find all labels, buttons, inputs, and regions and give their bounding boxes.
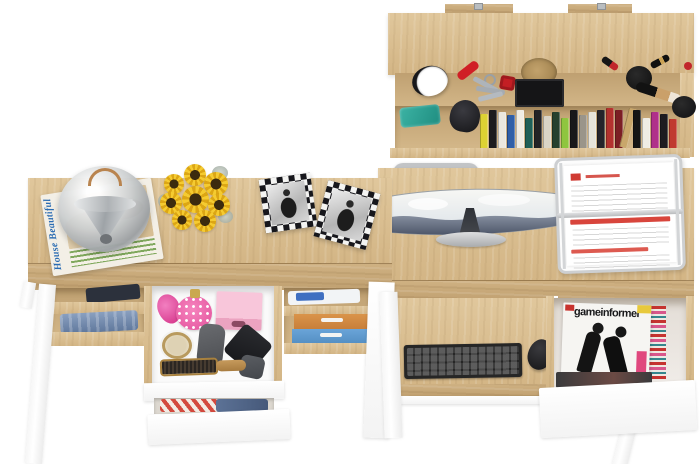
perfume-cap [190, 289, 200, 298]
paper-red-band [570, 216, 670, 224]
magazine-corner-tag [637, 305, 651, 313]
desk-lamp-bulb-cap [100, 234, 112, 244]
book-spine [489, 110, 497, 148]
sunflower [172, 210, 192, 230]
book-spine [552, 112, 560, 148]
document-tray [554, 154, 686, 274]
book-spine [642, 118, 650, 148]
book-spine [561, 118, 569, 148]
left-desk-leg [25, 284, 56, 464]
blue-box [292, 329, 370, 343]
cover-figure [576, 330, 602, 375]
keyboard-keys [407, 346, 519, 376]
paper-red-band [571, 247, 648, 254]
hairbrush [160, 357, 247, 377]
orange-box [294, 314, 370, 329]
photo-frame [258, 173, 317, 234]
book-spine [633, 110, 641, 148]
monitor-stand-base [436, 232, 506, 247]
book-spine [534, 110, 542, 148]
book-spine [660, 114, 668, 148]
furniture-product-render: gameinformer House Beautiful [0, 0, 700, 464]
striped-shirt [160, 399, 218, 412]
book-spine [588, 112, 596, 148]
mounting-bracket-icon [597, 3, 606, 10]
cover-figure-head [615, 326, 626, 337]
desk-lamp-rim [74, 196, 136, 212]
keyboard [404, 343, 523, 379]
book-spine [570, 110, 578, 148]
wall-shelf [388, 4, 694, 157]
red-key-fob [499, 75, 516, 91]
paper-text-lines [573, 254, 669, 269]
book-spine [516, 110, 524, 148]
book-spine [651, 112, 659, 148]
book-spine [579, 115, 587, 148]
framed-photo [322, 189, 372, 242]
hairbrush-bristles [160, 357, 219, 376]
box-handle-slot [321, 318, 343, 322]
left-desk-leg-top [20, 281, 36, 309]
box-handle-slot [320, 333, 342, 337]
black-tray [515, 79, 564, 107]
pink-box [215, 291, 262, 331]
hairbrush-handle [216, 360, 246, 372]
book-spine [498, 112, 506, 148]
cream-jar [162, 332, 192, 359]
right-drawer-side [546, 296, 554, 392]
clothing-drawer-front [147, 409, 290, 445]
sunflower [164, 174, 184, 194]
cosmetic-cap [684, 62, 692, 70]
right-drawer-front [539, 380, 697, 438]
book-spine [525, 118, 533, 148]
sunflower-bouquet [160, 164, 238, 234]
book-spine [507, 115, 515, 148]
mounting-bracket-icon [474, 3, 483, 10]
sunflower [204, 172, 228, 196]
sunflower [194, 210, 216, 232]
paper-red-header [586, 174, 620, 178]
book-spine [669, 119, 677, 148]
sunflower [182, 186, 209, 213]
cloth-blue-patch [296, 292, 324, 301]
keyboard-tray-lip [389, 396, 549, 404]
cover-figure-head [592, 323, 603, 334]
framed-photo [266, 181, 309, 226]
folded-jeans [60, 310, 139, 334]
book-spine [606, 108, 614, 148]
magazine-corner-tag [565, 305, 574, 311]
book-spine [543, 116, 551, 148]
white-blue-cloth [288, 289, 360, 306]
teal-case [399, 104, 441, 128]
sunflower [184, 164, 206, 186]
book-spine [597, 110, 605, 148]
paper-text-lines [573, 226, 670, 247]
right-drawer-side [686, 296, 694, 392]
book-row [480, 106, 678, 148]
paper-logo-red [571, 173, 581, 180]
book-spine [480, 114, 488, 148]
shelf-board [40, 332, 144, 346]
